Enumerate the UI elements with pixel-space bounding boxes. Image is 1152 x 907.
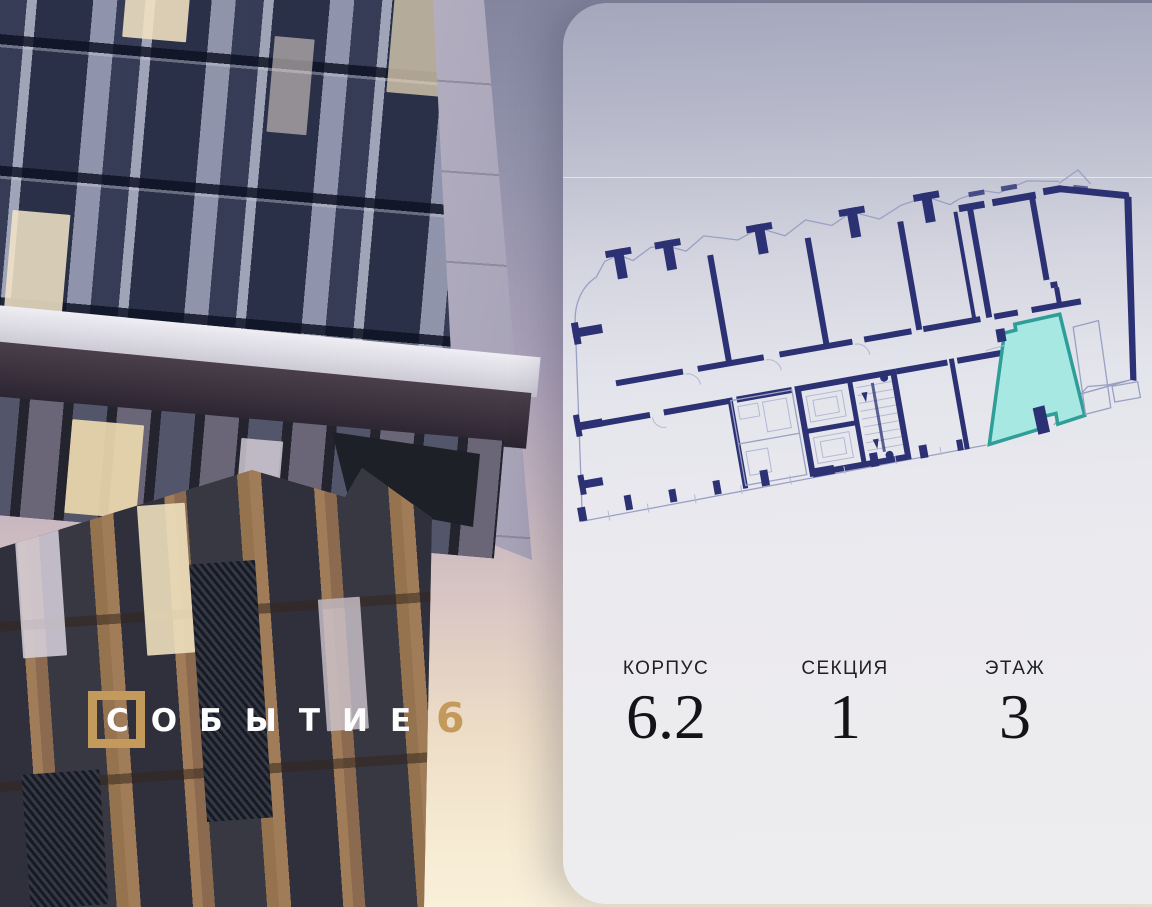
mesh-panel: [21, 769, 108, 907]
logo-wordmark: СОБЫТИЕ: [106, 703, 433, 739]
spec-value: 3: [985, 684, 1045, 749]
spec-value: 1: [801, 684, 888, 749]
selected-unit-highlight[interactable]: [969, 313, 1087, 444]
flat-info-card: КОРПУС 6.2 СЕКЦИЯ 1 ЭТАЖ 3: [563, 3, 1152, 904]
spec-label: СЕКЦИЯ: [801, 658, 888, 680]
spec-etazh: ЭТАЖ 3: [985, 658, 1045, 749]
floor-plan[interactable]: [560, 135, 1152, 575]
spec-label: ЭТАЖ: [985, 658, 1045, 680]
spec-label: КОРПУС: [623, 658, 709, 680]
spec-value: 6.2: [623, 684, 709, 749]
spec-korpus: КОРПУС 6.2: [623, 658, 709, 749]
logo-number: 6: [436, 694, 465, 742]
page: СОБЫТИЕ 6: [0, 0, 1152, 907]
spec-sekciya: СЕКЦИЯ 1: [801, 658, 888, 749]
